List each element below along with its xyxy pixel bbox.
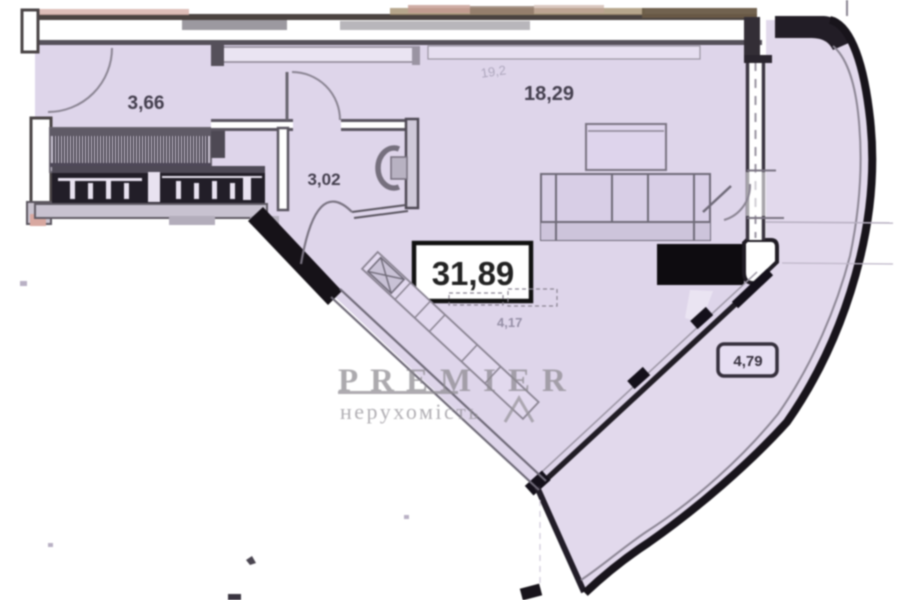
svg-text:18,29: 18,29	[524, 83, 574, 105]
svg-text:4,79: 4,79	[733, 353, 762, 370]
svg-text:3,02: 3,02	[307, 170, 340, 189]
svg-text:31,89: 31,89	[432, 255, 515, 292]
svg-text:4,17: 4,17	[497, 315, 522, 330]
svg-text:3,66: 3,66	[128, 93, 165, 114]
svg-text:нерухомість: нерухомість	[340, 399, 481, 424]
